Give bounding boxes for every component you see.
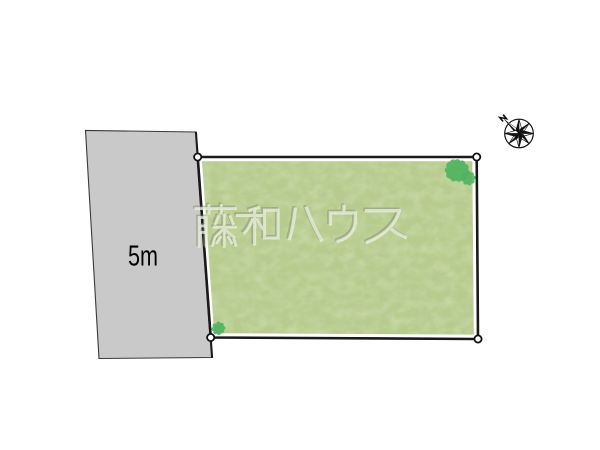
svg-text:5m: 5m bbox=[128, 241, 158, 273]
